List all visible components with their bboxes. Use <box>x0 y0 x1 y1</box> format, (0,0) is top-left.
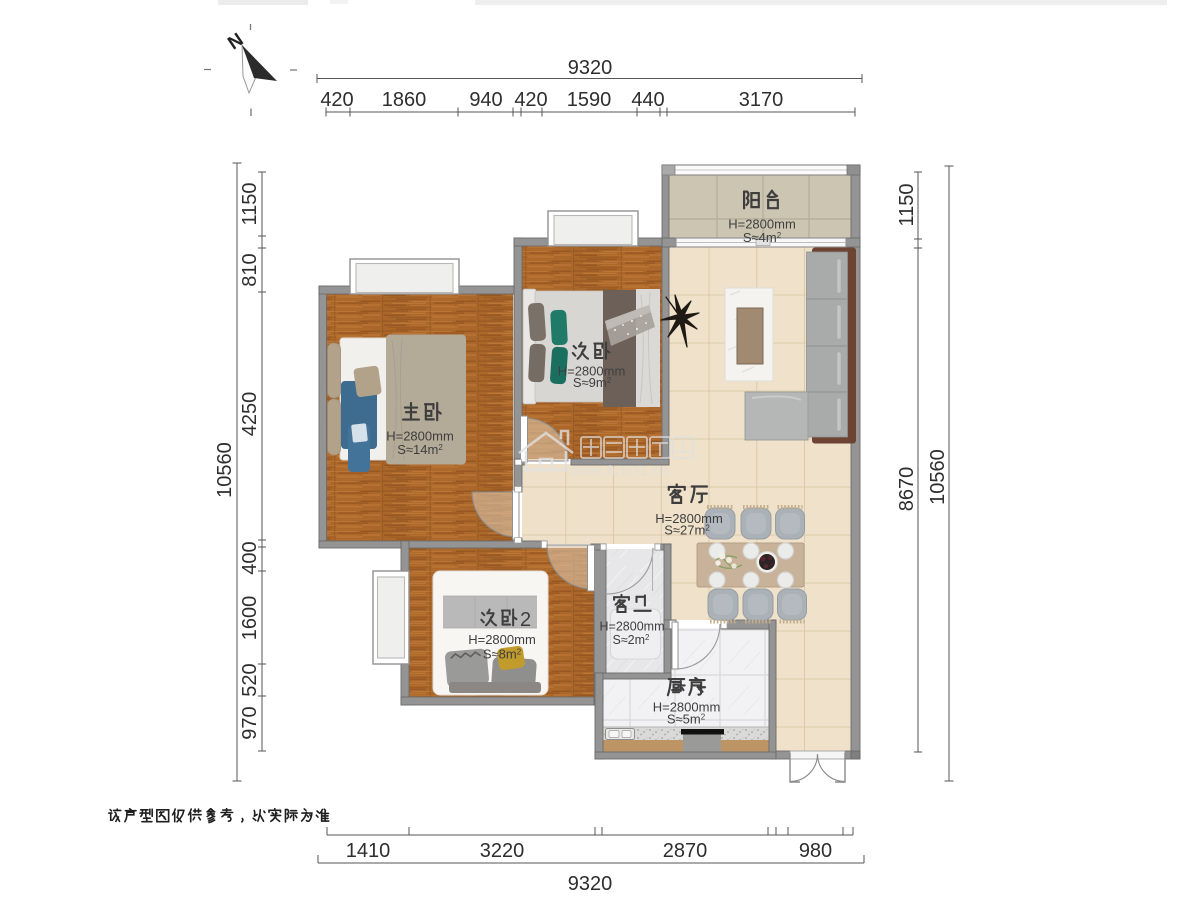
svg-text:970: 970 <box>239 706 261 739</box>
svg-text:3220: 3220 <box>480 840 525 862</box>
svg-text:S≈4m2: S≈4m2 <box>743 230 782 245</box>
svg-text:1410: 1410 <box>346 840 391 862</box>
svg-text:10560: 10560 <box>927 449 949 505</box>
svg-text:440: 440 <box>631 89 664 111</box>
svg-text:420: 420 <box>320 89 353 111</box>
svg-text:2870: 2870 <box>663 840 708 862</box>
svg-text:S≈27m2: S≈27m2 <box>664 523 710 538</box>
svg-text:1600: 1600 <box>239 596 261 641</box>
svg-text:9320: 9320 <box>568 873 613 895</box>
svg-text:420: 420 <box>514 89 547 111</box>
svg-text:400: 400 <box>239 541 261 574</box>
svg-text:S≈8m2: S≈8m2 <box>483 647 522 662</box>
svg-text:4250: 4250 <box>239 392 261 437</box>
svg-text:940: 940 <box>469 89 502 111</box>
svg-text:S≈2m2: S≈2m2 <box>612 633 650 647</box>
svg-text:3170: 3170 <box>739 89 784 111</box>
svg-text:1860: 1860 <box>382 89 427 111</box>
svg-text:9320: 9320 <box>568 57 613 79</box>
svg-text:1150: 1150 <box>239 182 261 225</box>
svg-text:S≈5m2: S≈5m2 <box>667 712 706 727</box>
svg-text:www.fc1O1.cn: www.fc1O1.cn <box>570 463 669 478</box>
svg-text:1590: 1590 <box>567 89 612 111</box>
svg-text:2: 2 <box>520 609 531 631</box>
svg-text:520: 520 <box>239 663 261 696</box>
svg-text:S≈9m2: S≈9m2 <box>573 375 612 390</box>
svg-text:980: 980 <box>799 840 832 862</box>
svg-text:810: 810 <box>239 253 261 286</box>
svg-text:1150: 1150 <box>896 183 918 226</box>
svg-text:8670: 8670 <box>896 467 918 512</box>
svg-text:S≈14m2: S≈14m2 <box>397 442 443 457</box>
svg-text:10560: 10560 <box>214 442 236 498</box>
svg-text:H=2800mm: H=2800mm <box>600 620 665 634</box>
svg-text:H=2800mm: H=2800mm <box>468 632 536 647</box>
